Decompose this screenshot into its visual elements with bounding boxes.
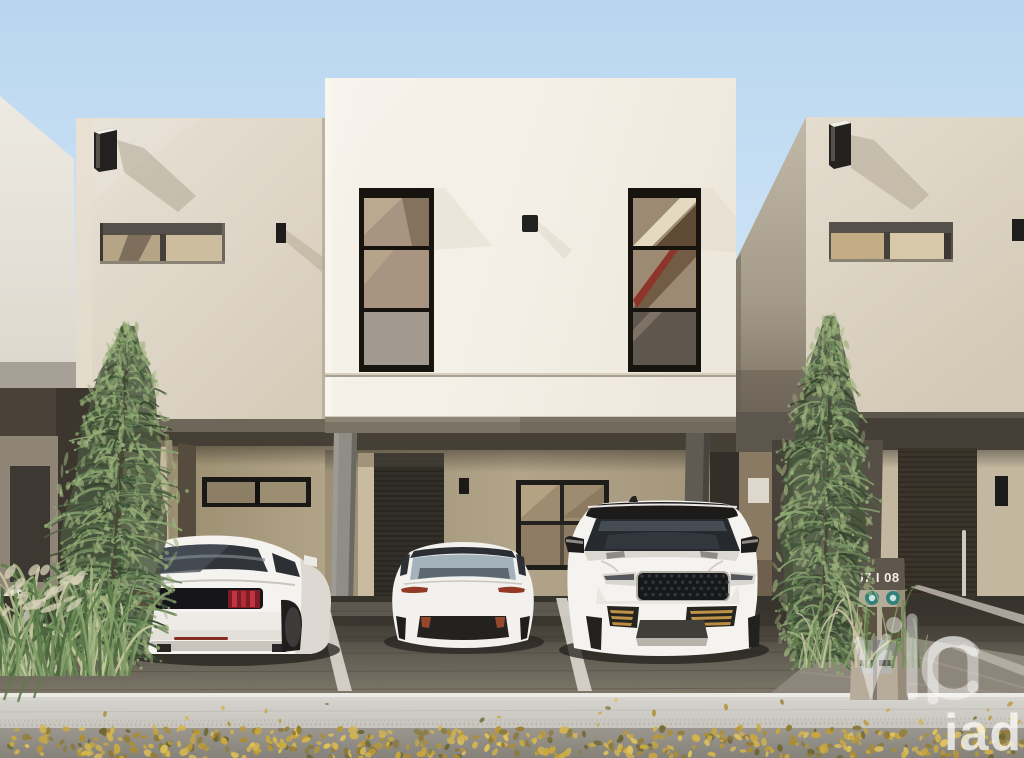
svg-text:07 I 08: 07 I 08	[856, 570, 899, 585]
svg-text:iad: iad	[944, 704, 1022, 758]
